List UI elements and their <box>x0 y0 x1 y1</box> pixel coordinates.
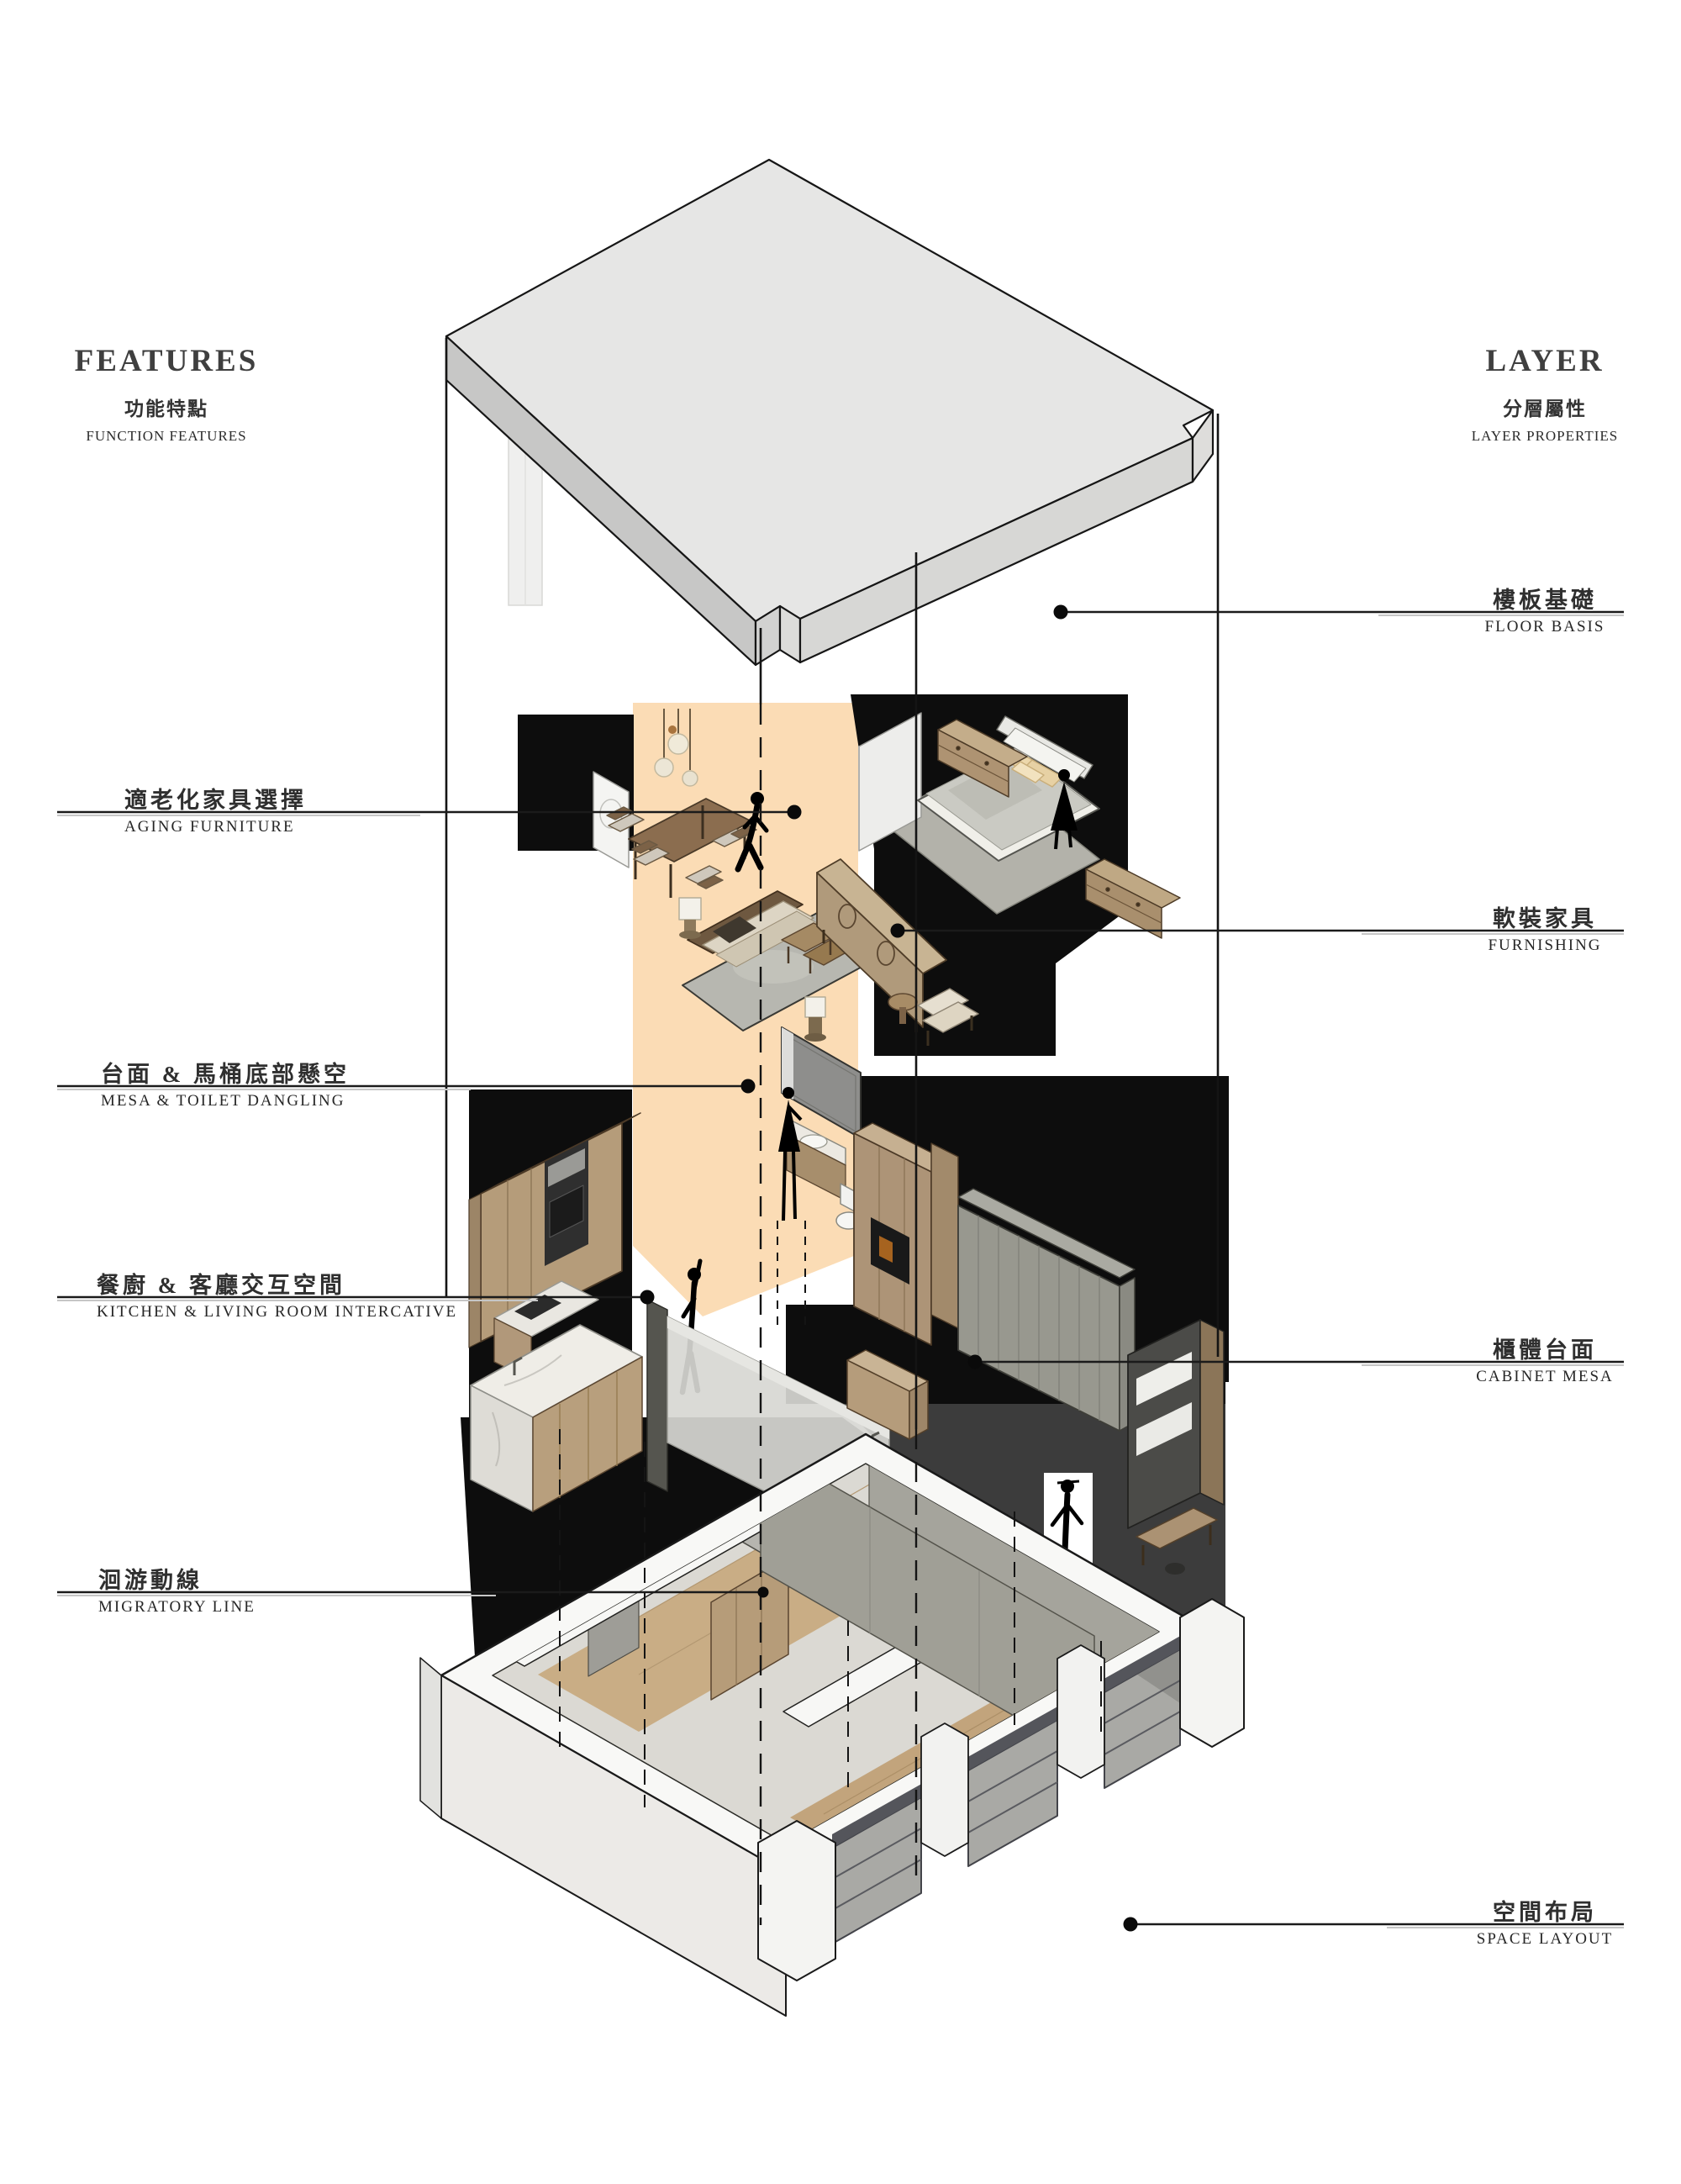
features-subtitle-en: FUNCTION FEATURES <box>74 428 259 445</box>
features-subtitle-zh: 功能特點 <box>74 393 259 421</box>
callout-mesa-toilet-en: MESA & TOILET DANGLING <box>101 1092 345 1110</box>
balcony-post-2 <box>1057 1645 1104 1778</box>
callout-space-layout-zh: 空間布局 <box>1440 1894 1650 1927</box>
callout-aging-furniture-en: AGING FURNITURE <box>124 818 295 836</box>
callout-aging-furniture-zh: 適老化家具選擇 <box>124 782 307 815</box>
callout-furnishing-zh: 軟裝家具 <box>1440 900 1650 933</box>
callout-cabinet-mesa-zh: 櫃體台面 <box>1440 1332 1650 1364</box>
balcony-post-1 <box>921 1723 968 1856</box>
callout-mesa-toilet-zh: 台面 & 馬桶底部懸空 <box>101 1056 350 1089</box>
callout-furnishing-en: FURNISHING <box>1440 936 1650 955</box>
table-lamp-left <box>679 898 701 939</box>
layer-title: LAYER <box>1440 343 1650 379</box>
callout-migratory-line-zh: 洄游動線 <box>98 1562 203 1595</box>
features-header: FEATURES 功能特點 FUNCTION FEATURES <box>74 343 259 445</box>
callout-cabinet-mesa-en: CABINET MESA <box>1440 1368 1650 1386</box>
features-title: FEATURES <box>74 343 259 379</box>
callout-space-layout-en: SPACE LAYOUT <box>1440 1930 1650 1949</box>
layer-subtitle-zh: 分層屬性 <box>1440 393 1650 421</box>
desk-shelf-unit <box>1128 1320 1224 1575</box>
callout-floor-basis-en: FLOOR BASIS <box>1440 618 1650 636</box>
layer-subtitle-en: LAYER PROPERTIES <box>1440 428 1650 445</box>
layer-header: LAYER 分層屬性 LAYER PROPERTIES <box>1440 343 1650 445</box>
corner-tower-bottom <box>758 1821 835 1981</box>
callout-kitchen-living-zh: 餐廚 & 客廳交互空間 <box>97 1267 345 1300</box>
corner-tower-right <box>1180 1599 1244 1747</box>
callout-migratory-line-en: MIGRATORY LINE <box>98 1598 256 1617</box>
callout-kitchen-living-en: KITCHEN & LIVING ROOM INTERCATIVE <box>97 1303 457 1321</box>
floor-slab-layer <box>446 160 1213 665</box>
exploded-axon-page: FEATURES 功能特點 FUNCTION FEATURES LAYER 分層… <box>0 0 1681 2184</box>
callout-floor-basis-zh: 樓板基礎 <box>1440 582 1650 615</box>
